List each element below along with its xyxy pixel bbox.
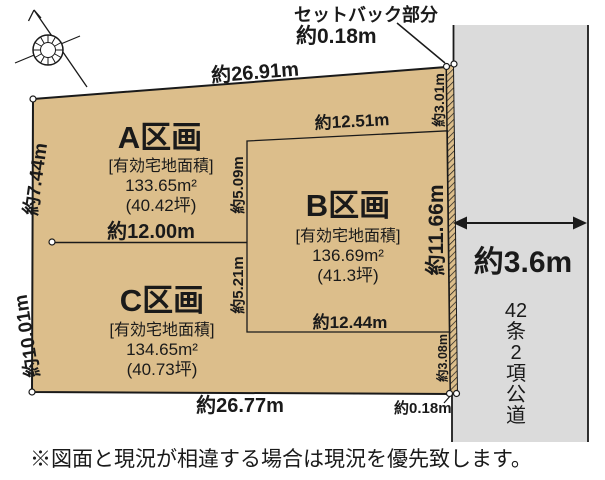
parcel-c-tsubo: (40.73坪) [127, 360, 198, 379]
survey-point [454, 391, 460, 397]
parcel-a-tsubo: (40.42坪) [126, 196, 197, 215]
setback-callout-value: 約0.18m [296, 24, 377, 48]
parcel-a-area: 133.65m² [125, 176, 197, 195]
dim-right-middle: 約11.66m [424, 184, 448, 275]
road-width-label: 約3.6m [474, 246, 572, 279]
survey-point [447, 391, 453, 397]
footnote: ※図面と現況が相違する場合は現況を優先致します。 [30, 448, 532, 471]
dim-bottom-edge: 約26.77m [196, 393, 284, 417]
road-name-char: 公 [506, 385, 526, 405]
road-name-char: 条 [506, 322, 526, 342]
survey-point [29, 389, 35, 395]
dim-b-left-lower: 約5.21m [229, 256, 247, 314]
setback-callout-title: セットバック部分 [294, 4, 438, 25]
road-name-char: 道 [506, 406, 526, 426]
compass-needle-arrowhead [34, 10, 41, 18]
parcel-c-title: C区画 [120, 283, 204, 318]
dim-right-upper: 約3.01m [431, 73, 447, 127]
survey-point [30, 96, 36, 102]
road-name-char: 42 [505, 301, 527, 321]
survey-point [49, 239, 55, 245]
dim-right-lower: 約3.08m [435, 334, 450, 382]
compass-icon [15, 10, 87, 87]
dim-b-left-upper: 約5.09m [229, 156, 247, 214]
dim-b-top: 約12.51m [314, 109, 390, 133]
setback-callout-leader [397, 23, 445, 63]
road-name-char: 項 [506, 364, 526, 384]
dim-b-bottom: 約12.44m [313, 312, 388, 332]
dim-setback-bottom: 約0.18m [394, 399, 452, 417]
dim-a-c-boundary: 約12.00m [107, 219, 195, 243]
parcel-b-area-label: [有効宅地面積] [296, 227, 401, 245]
parcel-b-area: 136.69m² [312, 246, 384, 265]
survey-point [451, 61, 457, 67]
parcel-b-tsubo: (41.3坪) [317, 266, 378, 285]
plot-diagram: セットバック部分 約0.18m A区画 [有効宅地面積] 133.65m² (4… [0, 0, 605, 480]
parcel-b-title: B区画 [306, 188, 390, 223]
survey-point [444, 64, 450, 70]
road-name-char: 2 [510, 343, 521, 363]
parcel-c-area-label: [有効宅地面積] [110, 321, 215, 339]
parcel-c-area: 134.65m² [126, 340, 198, 359]
parcel-a-area-label: [有効宅地面積] [109, 157, 214, 175]
compass-needle-arrowhead [29, 10, 35, 21]
road-name-label: 42 条 2 項 公 道 [499, 301, 533, 426]
parcel-a-title: A区画 [118, 120, 202, 155]
